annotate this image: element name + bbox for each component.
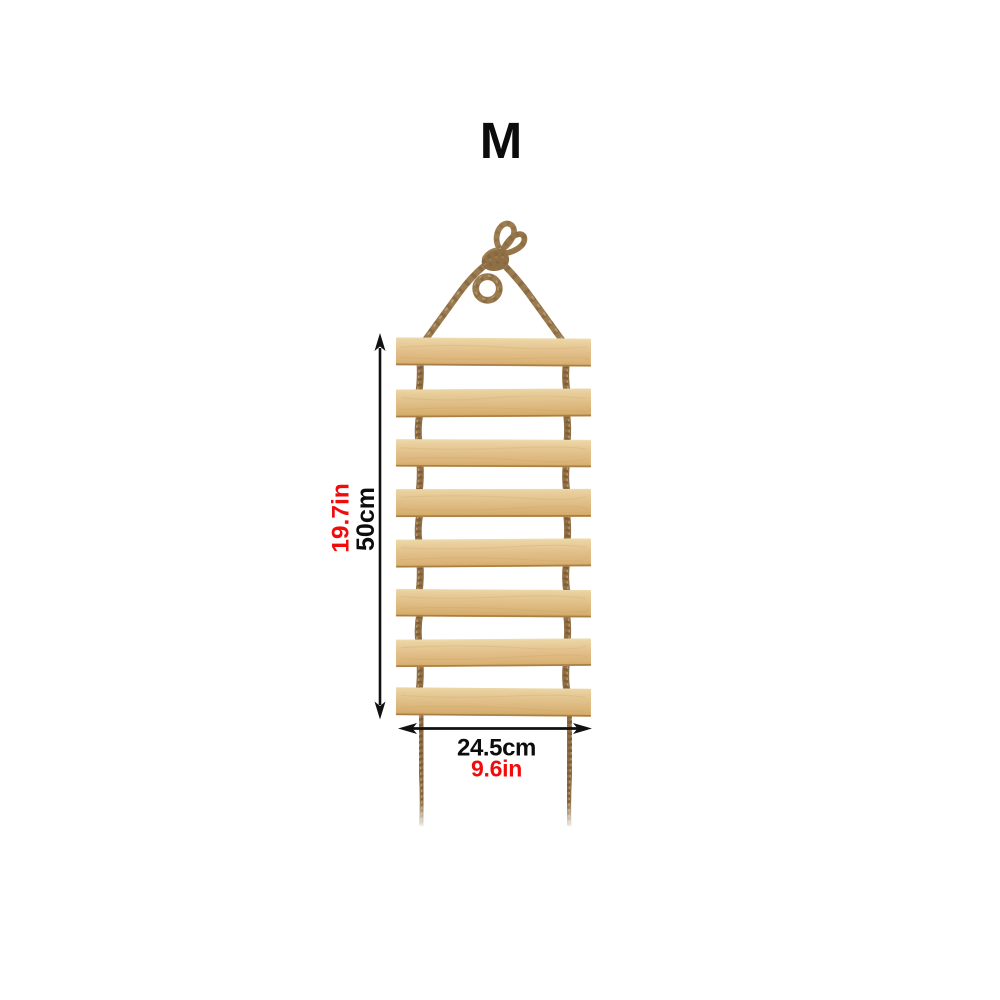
svg-text:9.6in: 9.6in [471, 756, 522, 782]
svg-text:M: M [480, 112, 522, 169]
svg-text:19.7in: 19.7in [328, 483, 355, 552]
svg-text:50cm: 50cm [352, 487, 380, 551]
